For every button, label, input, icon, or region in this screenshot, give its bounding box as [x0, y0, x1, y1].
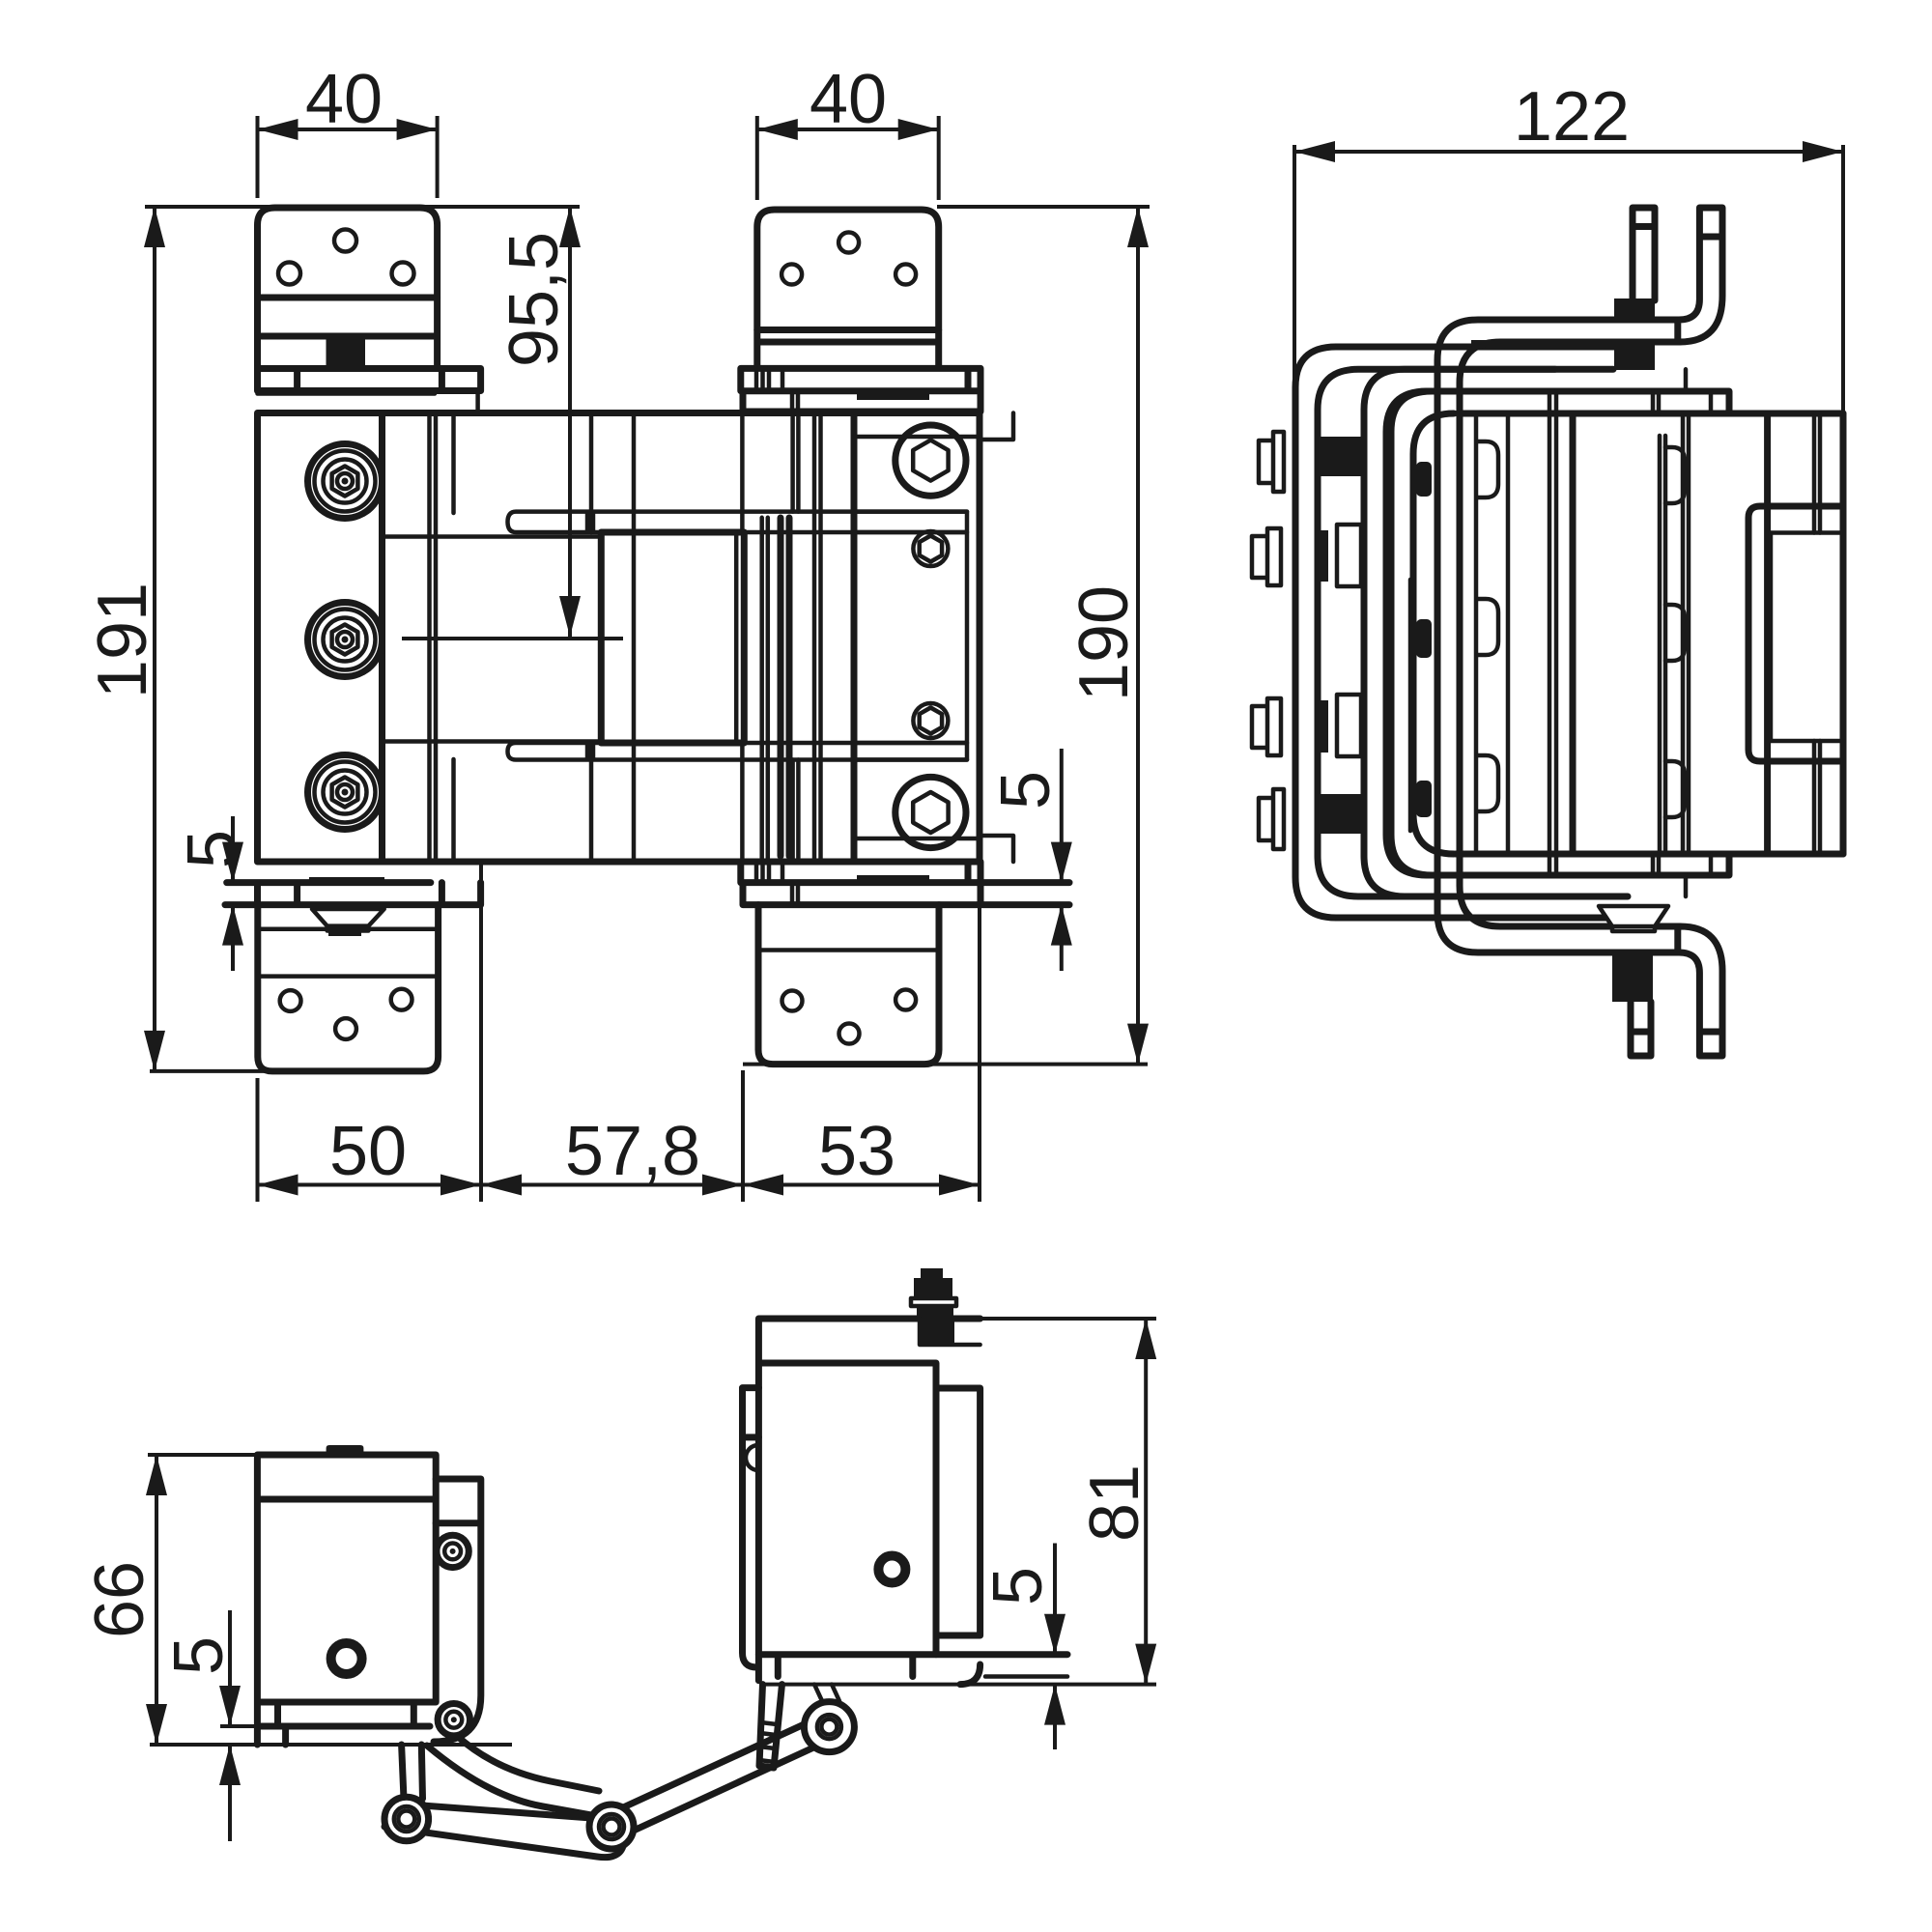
svg-text:40: 40: [810, 61, 887, 138]
svg-text:81: 81: [1076, 1464, 1153, 1542]
svg-text:50: 50: [329, 1113, 407, 1190]
svg-text:95,5: 95,5: [496, 232, 573, 367]
svg-text:191: 191: [84, 582, 161, 698]
svg-text:122: 122: [1514, 78, 1630, 156]
svg-text:40: 40: [305, 61, 383, 138]
svg-text:57,8: 57,8: [565, 1113, 700, 1190]
svg-text:53: 53: [818, 1113, 895, 1190]
svg-text:190: 190: [1065, 585, 1143, 701]
svg-text:5: 5: [980, 1567, 1057, 1605]
svg-text:66: 66: [81, 1561, 158, 1638]
svg-text:5: 5: [160, 1636, 238, 1675]
svg-text:5: 5: [174, 830, 251, 868]
svg-text:5: 5: [987, 771, 1065, 810]
